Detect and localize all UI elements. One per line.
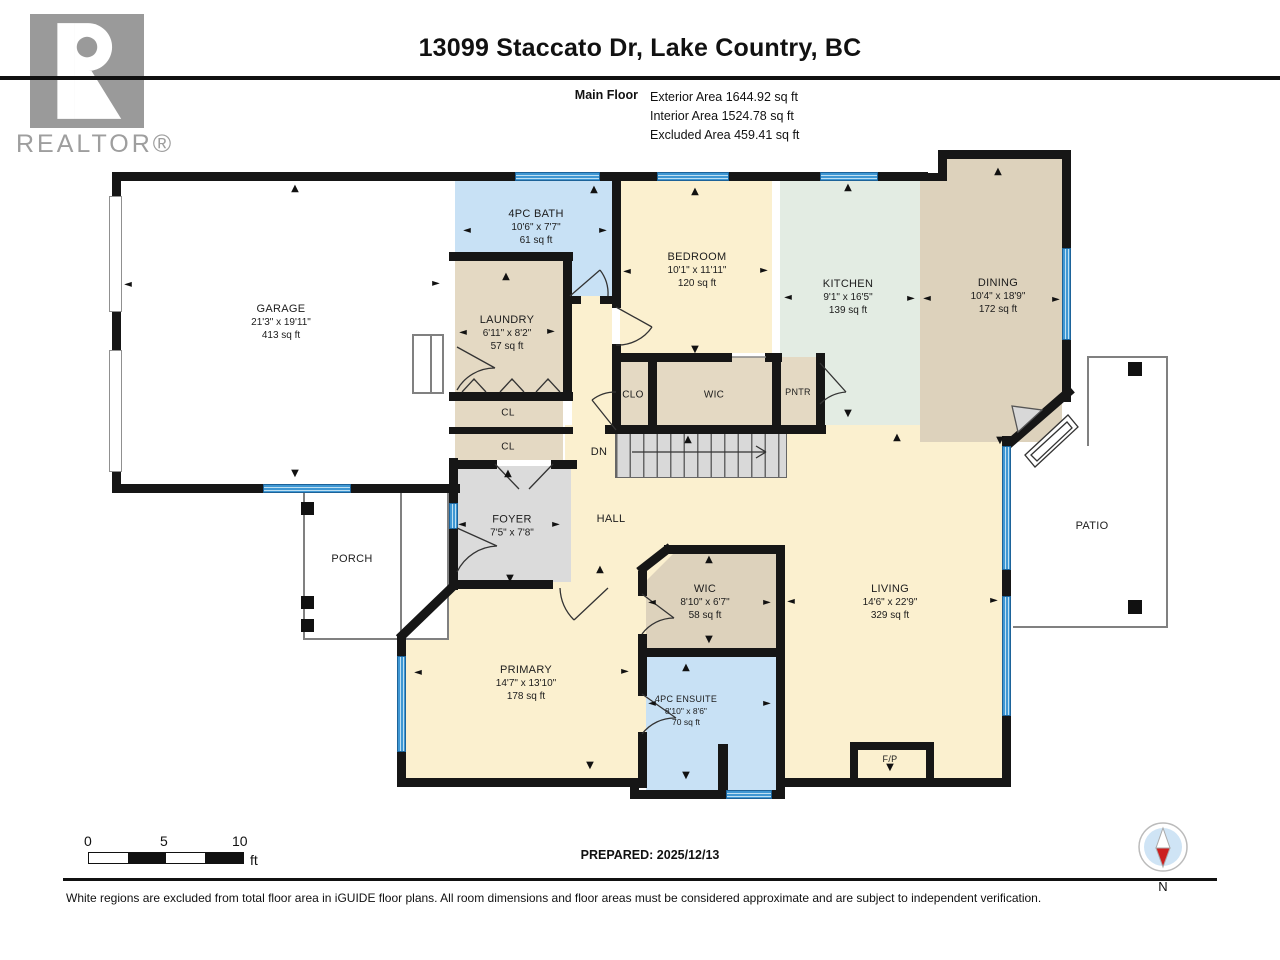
prepared-date: PREPARED: 2025/12/13 [540,848,760,862]
direction-marker-icon: ▲ [893,433,901,443]
direction-marker-icon: ◄ [787,597,795,607]
direction-marker-icon: ▲ [691,187,699,197]
direction-marker-icon: ▲ [705,555,713,565]
room-label-primary: PRIMARY14'7" x 13'10"178 sq ft [496,663,556,703]
direction-marker-icon: ◄ [458,520,466,530]
room-label-wic-primary: WIC8'10" x 6'7"58 sq ft [680,582,729,622]
room-label-porch: PORCH [331,552,372,566]
room-label-hall: HALL [597,512,626,526]
room-label-foyer: FOYER7'5" x 7'8" [490,512,534,539]
direction-marker-icon: ► [547,327,555,337]
room-label-laundry: LAUNDRY6'11" x 8'2"57 sq ft [480,313,534,353]
room-label-clo: CLO [622,389,643,402]
direction-marker-icon: ▲ [684,435,692,445]
direction-marker-icon: ► [552,520,560,530]
direction-marker-icon: ► [763,699,771,709]
direction-marker-icon: ▼ [586,761,594,771]
door-swings-layer [0,0,1280,960]
direction-marker-icon: ▼ [996,436,1004,446]
direction-marker-icon: ▼ [291,469,299,479]
room-label-garage: GARAGE21'3" x 19'11"413 sq ft [251,302,311,342]
direction-marker-icon: ► [432,279,440,289]
direction-marker-icon: ◄ [623,267,631,277]
direction-marker-icon: ◄ [648,598,656,608]
room-label-pntr: PNTR [785,387,811,399]
room-label-patio: PATIO [1076,519,1109,533]
direction-marker-icon: ◄ [414,668,422,678]
direction-marker-icon: ▼ [844,409,852,419]
room-label-dining: DINING10'4" x 18'9"172 sq ft [971,276,1026,316]
direction-marker-icon: ▲ [590,185,598,195]
disclaimer-text: White regions are excluded from total fl… [66,891,1041,905]
room-label-kitchen: KITCHEN9'1" x 16'5"139 sq ft [823,277,873,317]
direction-marker-icon: ▼ [691,345,699,355]
direction-marker-icon: ◄ [463,226,471,236]
direction-marker-icon: ◄ [648,699,656,709]
direction-marker-icon: ▲ [994,167,1002,177]
direction-marker-icon: ► [760,266,768,276]
stairs-dn-label: DN [591,445,608,459]
compass-north-label: N [1158,879,1167,894]
scale-tick-5: 5 [160,833,168,849]
direction-marker-icon: ▲ [291,184,299,194]
room-label-ensuite: 4PC ENSUITE8'10" x 8'6"70 sq ft [655,694,717,728]
room-label-living: LIVING14'6" x 22'9"329 sq ft [863,582,918,622]
header-rule [0,76,1280,80]
direction-marker-icon: ▼ [886,763,894,773]
direction-marker-icon: ► [1052,295,1060,305]
scale-unit: ft [250,852,258,868]
room-label-bedroom: BEDROOM10'1" x 11'11"120 sq ft [668,250,727,290]
room-label-wic-bedroom: WIC [704,389,724,402]
direction-marker-icon: ▲ [682,663,690,673]
direction-marker-icon: ► [990,596,998,606]
direction-marker-icon: ► [621,667,629,677]
scale-bar [88,852,244,864]
direction-marker-icon: ▼ [506,574,514,584]
direction-marker-icon: ▼ [705,635,713,645]
direction-marker-icon: ◄ [784,293,792,303]
direction-marker-icon: ◄ [124,280,132,290]
room-label-cl-upper: CL [501,407,514,420]
compass-icon [1136,820,1190,879]
floor-plan-page: 13099 Staccato Dr, Lake Country, BC Main… [0,0,1280,960]
direction-marker-icon: ▲ [844,183,852,193]
direction-marker-icon: ◄ [923,294,931,304]
direction-marker-icon: ▼ [682,771,690,781]
room-label-bath: 4PC BATH10'6" x 7'7"61 sq ft [508,207,563,247]
direction-marker-icon: ▲ [596,565,604,575]
room-label-cl-lower: CL [501,441,514,454]
direction-marker-icon: ◄ [459,328,467,338]
direction-marker-icon: ▲ [504,469,512,479]
direction-marker-icon: ► [763,598,771,608]
direction-marker-icon: ► [599,226,607,236]
direction-marker-icon: ▲ [502,272,510,282]
scale-tick-10: 10 [232,833,248,849]
footer-rule [63,878,1217,881]
scale-tick-0: 0 [84,833,92,849]
direction-marker-icon: ► [907,294,915,304]
